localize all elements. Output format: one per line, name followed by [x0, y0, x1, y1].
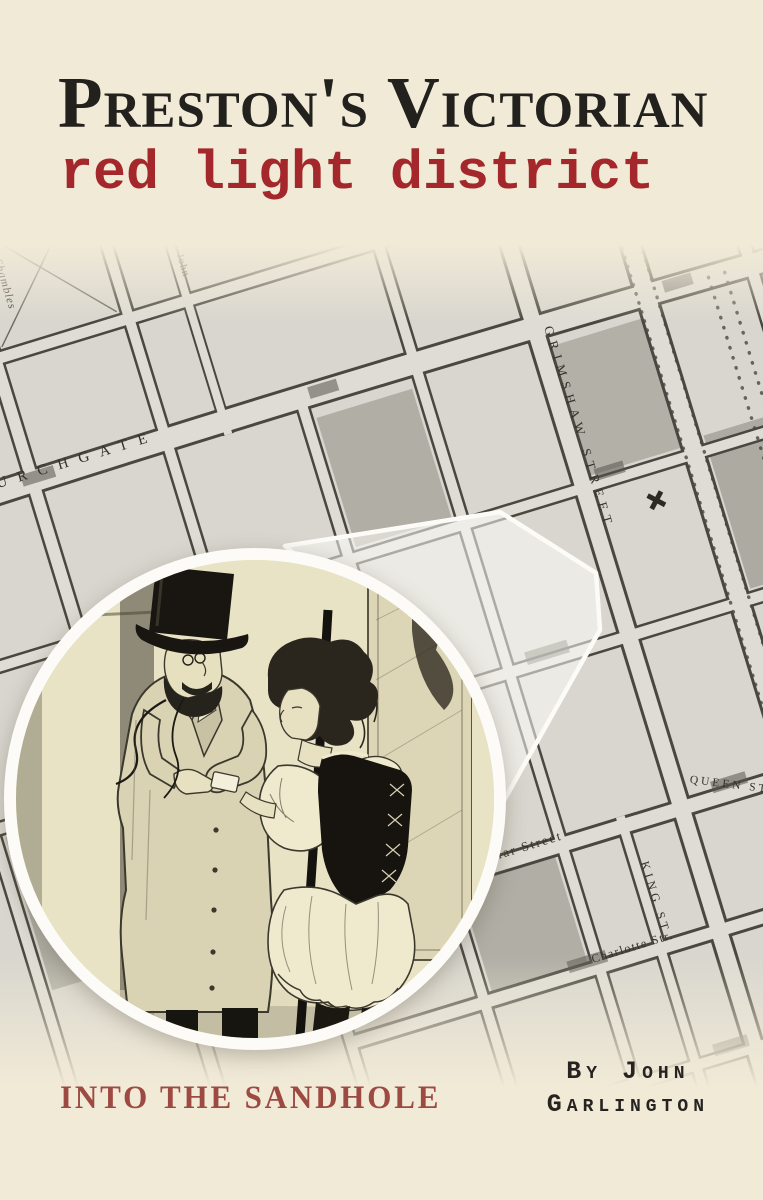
- circular-inset: [4, 548, 506, 1050]
- victorian-couple-illustration: [16, 560, 494, 1038]
- footer: INTO THE SANDHOLE By John Garlington: [0, 1056, 763, 1121]
- title-block: Preston's Victorian red light district: [58, 66, 708, 201]
- page-subtitle: red light district: [60, 146, 708, 201]
- map-top-fade: [0, 238, 763, 322]
- book-cover: Preston's Victorian red light district: [0, 0, 763, 1200]
- engraving-texture: [16, 560, 494, 1038]
- byline-line-1: By John: [547, 1056, 709, 1089]
- author-byline: By John Garlington: [547, 1056, 709, 1121]
- byline-line-2: Garlington: [547, 1089, 709, 1122]
- tagline: INTO THE SANDHOLE: [60, 1080, 441, 1117]
- page-title: Preston's Victorian: [58, 66, 708, 140]
